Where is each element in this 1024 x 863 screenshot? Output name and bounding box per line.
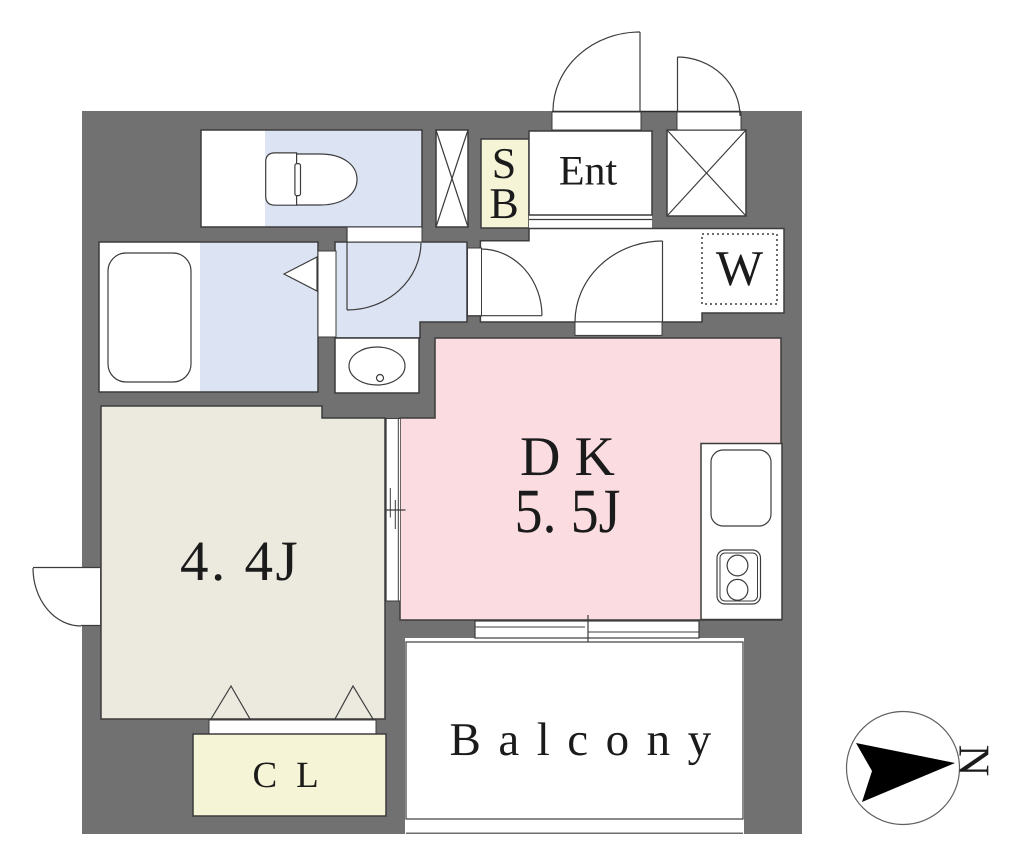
svg-text:W: W xyxy=(716,240,764,296)
svg-text:5. 5J: 5. 5J xyxy=(515,476,621,546)
svg-text:4. 4J: 4. 4J xyxy=(180,530,300,593)
svg-text:Ent: Ent xyxy=(559,149,618,195)
svg-text:CL: CL xyxy=(253,755,338,796)
svg-text:B: B xyxy=(489,179,518,228)
svg-text:N: N xyxy=(950,745,999,777)
svg-text:Balcony: Balcony xyxy=(450,714,729,766)
